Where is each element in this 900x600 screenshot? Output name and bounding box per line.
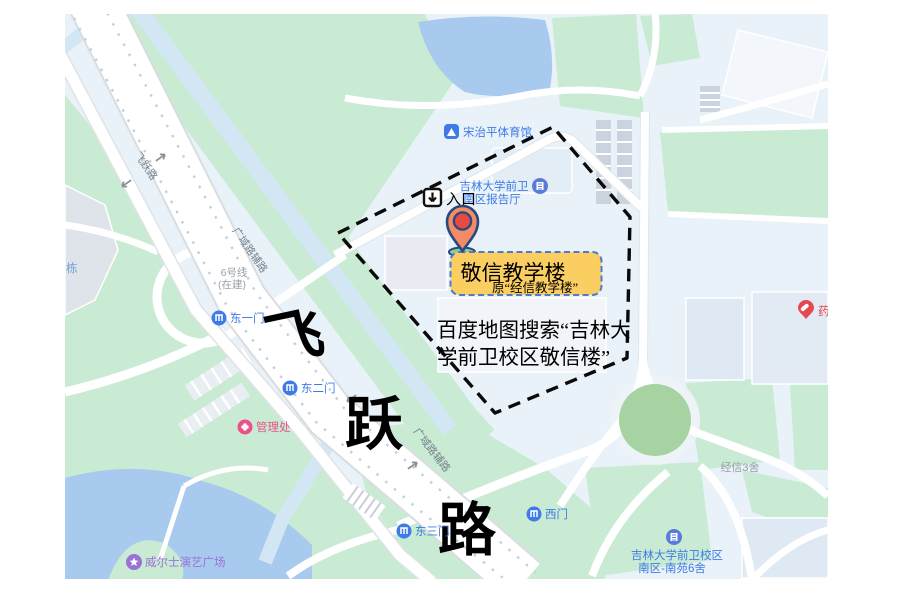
building-highlight-card: 敬信教学楼 原“经信教学楼”: [451, 252, 602, 295]
building-icon: [532, 178, 548, 194]
big-char-yue: 跃: [345, 392, 404, 457]
poi-admin-office[interactable]: 管理处: [238, 420, 291, 435]
theater-icon: [126, 554, 142, 570]
poi-gate-east2[interactable]: 东二门: [283, 381, 336, 396]
entrance-annotation: 入口: [424, 189, 476, 208]
gate-icon: [527, 507, 542, 522]
highlight-subtitle: 原“经信教学楼”: [492, 280, 578, 295]
svg-text:(在建): (在建): [218, 278, 246, 291]
svg-text:6号线: 6号线: [221, 266, 248, 279]
subway-line6-label: 6号线 (在建): [218, 266, 248, 291]
svg-text:吉林大学前卫校区: 吉林大学前卫校区: [631, 548, 723, 562]
gate-icon: [283, 381, 298, 396]
poi-gate-west[interactable]: 西门: [527, 507, 569, 522]
poi-dorm3-label[interactable]: 经信3舍: [720, 460, 759, 474]
search-hint-line1: 百度地图搜索“吉林大: [437, 319, 631, 342]
poi-partial-building-label: 栋: [66, 261, 78, 275]
gate-icon: [212, 311, 227, 326]
map-screenshot: 飞跃路 广域路辅路 广域路辅路 6号线 (在建) 飞 跃 路: [0, 0, 900, 600]
gate-icon: [397, 524, 412, 539]
svg-text:宋治平体育馆: 宋治平体育馆: [463, 125, 532, 139]
svg-text:管理处: 管理处: [256, 420, 291, 434]
svg-text:东一门: 东一门: [230, 311, 265, 325]
svg-text:南区-南苑6舍: 南区-南苑6舍: [638, 561, 706, 575]
flower-icon: [238, 420, 253, 435]
svg-text:东三门: 东三门: [415, 524, 450, 538]
svg-text:吉林大学前卫: 吉林大学前卫: [460, 179, 529, 193]
svg-text:药: 药: [818, 305, 830, 318]
search-hint-line2: 学前卫校区敬信楼”: [437, 346, 610, 369]
building-icon: [666, 529, 682, 545]
svg-text:威尔士演艺广场: 威尔士演艺广场: [145, 555, 226, 569]
poi-gate-east1[interactable]: 东一门: [212, 311, 265, 326]
svg-text:东二门: 东二门: [301, 381, 336, 395]
poi-stadium[interactable]: 宋治平体育馆: [444, 124, 532, 139]
map-canvas[interactable]: 飞跃路 广域路辅路 广域路辅路 6号线 (在建) 飞 跃 路: [0, 0, 900, 600]
poi-gate-east3[interactable]: 东三门: [397, 524, 450, 539]
stadium-icon: [444, 124, 459, 139]
svg-text:西门: 西门: [545, 507, 568, 521]
pin-inner-circle: [454, 212, 471, 229]
traffic-circle-green: [619, 384, 691, 456]
